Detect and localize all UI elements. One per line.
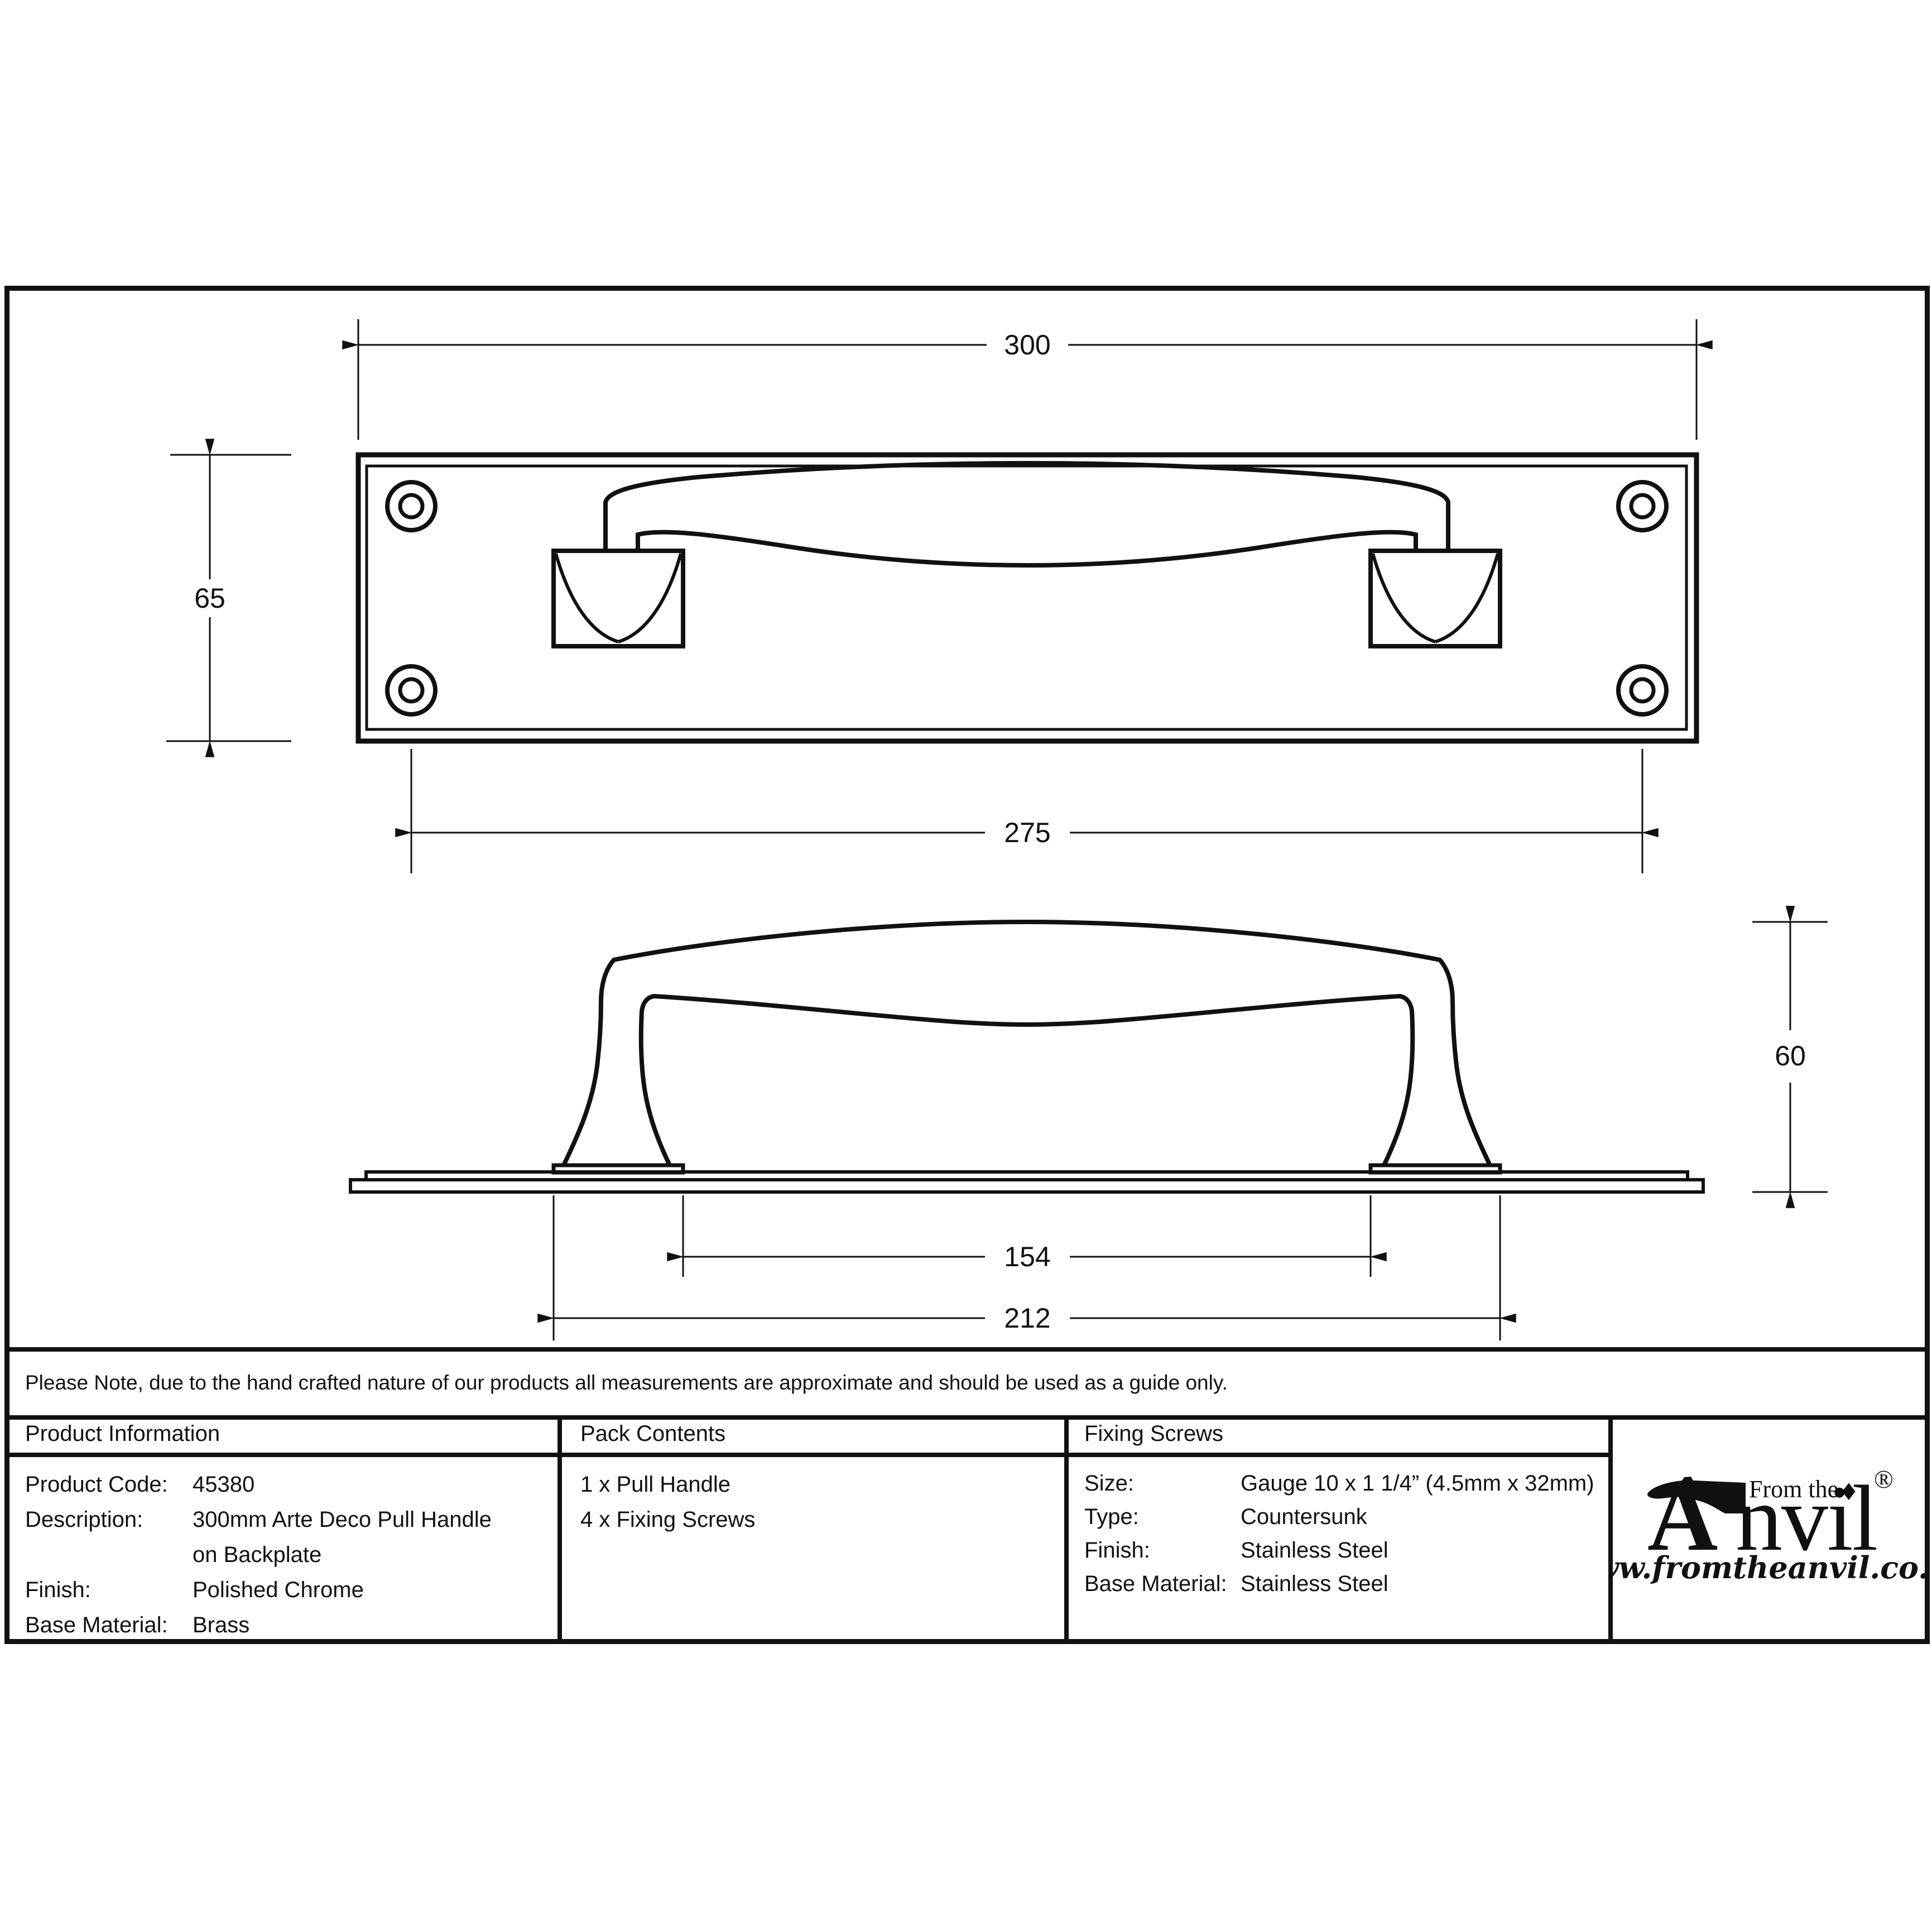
screw-type-value: Countersunk — [1241, 1505, 1367, 1530]
table-column-separator — [558, 1415, 562, 1639]
table-column-separator — [1064, 1415, 1069, 1639]
table-divider-top — [9, 1415, 1925, 1420]
header-product-information: Product Information — [25, 1421, 220, 1446]
note-divider-top — [9, 1347, 1925, 1352]
diamond-icon: ♦ — [1838, 1478, 1859, 1506]
spec-sheet-page: 300 65 275 60 — [0, 0, 1932, 1932]
header-fixing-screws: Fixing Screws — [1084, 1421, 1223, 1446]
base-material-label: Base Material: — [25, 1613, 168, 1638]
screw-base-material-label: Base Material: — [1084, 1571, 1227, 1597]
screw-base-material-value: Stainless Steel — [1241, 1571, 1388, 1597]
description-label: Description: — [25, 1507, 143, 1532]
from-the-anvil-logo: A nvil From the ♦ ® www.fromtheanvil.co.… — [1608, 1451, 1930, 1618]
note-text: Please Note, due to the hand crafted nat… — [25, 1371, 1228, 1395]
table-header-underline — [9, 1453, 1608, 1457]
pack-item: 4 x Fixing Screws — [580, 1507, 755, 1532]
logo-website: www.fromtheanvil.co.uk — [1608, 1550, 1930, 1585]
product-code-value: 45380 — [193, 1472, 254, 1497]
logo-tagline: From the — [1749, 1476, 1838, 1503]
screw-size-label: Size: — [1084, 1471, 1134, 1496]
screw-size-value: Gauge 10 x 1 1/4” (4.5mm x 32mm) — [1241, 1471, 1594, 1496]
product-code-label: Product Code: — [25, 1472, 168, 1497]
page-border: Please Note, due to the hand crafted nat… — [4, 286, 1930, 1644]
description-value-line2: on Backplate — [193, 1542, 321, 1568]
screw-type-label: Type: — [1084, 1505, 1139, 1530]
finish-value: Polished Chrome — [193, 1578, 364, 1603]
header-pack-contents: Pack Contents — [580, 1421, 725, 1446]
screw-finish-value: Stainless Steel — [1241, 1538, 1388, 1563]
registered-mark-icon: ® — [1874, 1465, 1893, 1493]
pack-item: 1 x Pull Handle — [580, 1472, 730, 1497]
description-value-line1: 300mm Arte Deco Pull Handle — [193, 1507, 492, 1532]
finish-label: Finish: — [25, 1578, 91, 1603]
base-material-value: Brass — [193, 1613, 249, 1638]
screw-finish-label: Finish: — [1084, 1538, 1150, 1563]
